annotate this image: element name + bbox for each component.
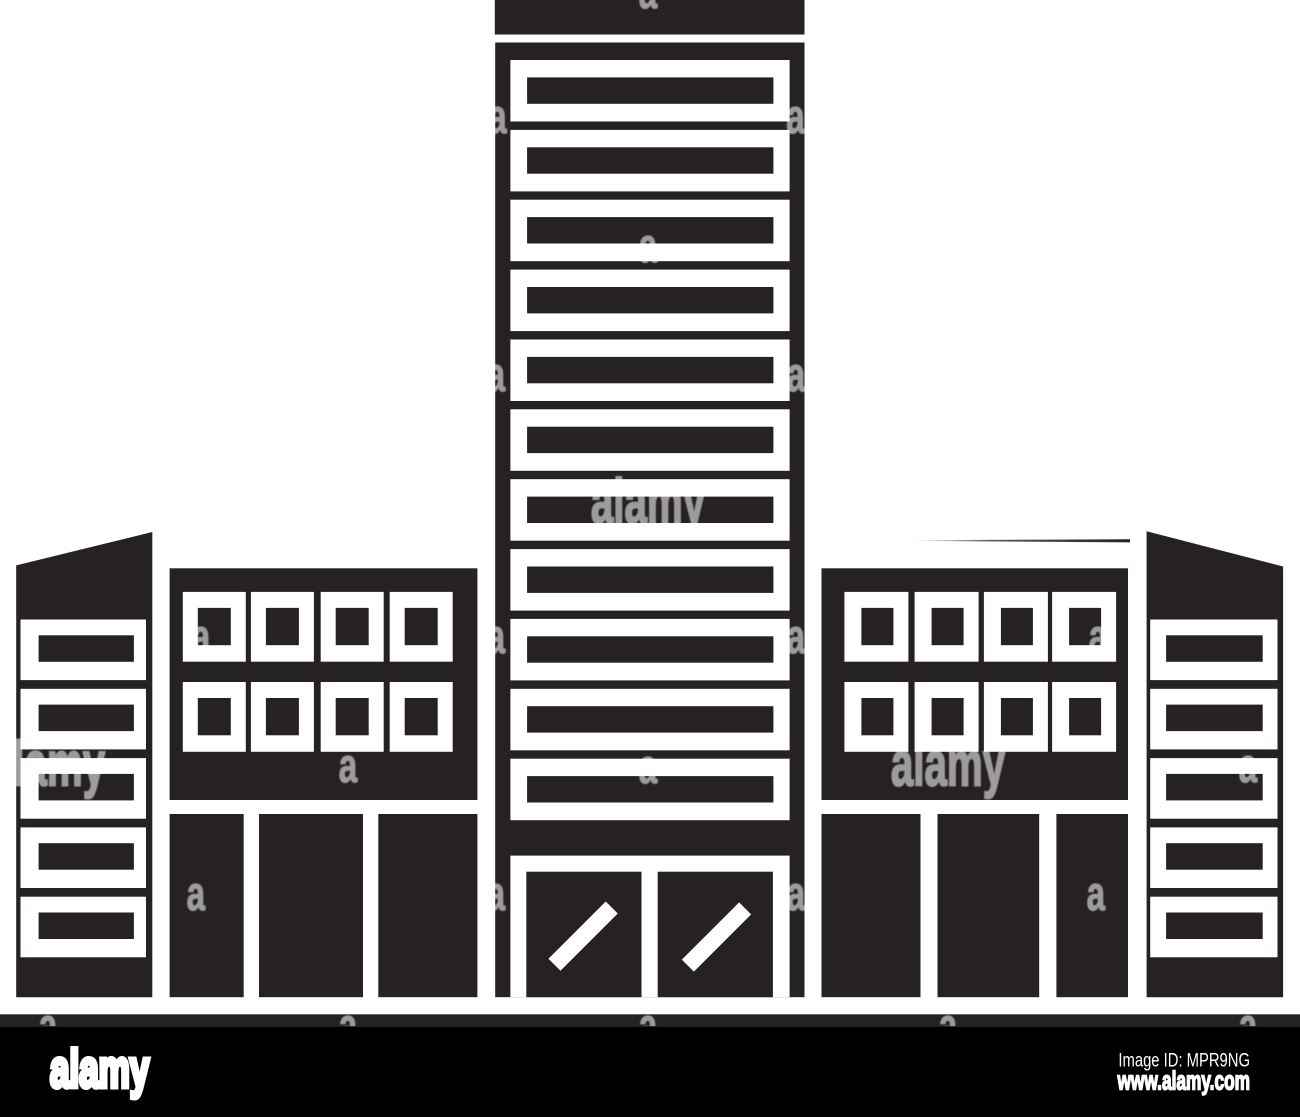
svg-text:a: a	[787, 867, 806, 921]
svg-text:a: a	[639, 0, 658, 18]
svg-text:a: a	[487, 867, 506, 921]
svg-text:a: a	[1089, 610, 1108, 664]
svg-text:a: a	[192, 610, 211, 664]
svg-text:a: a	[339, 739, 358, 793]
svg-text:a: a	[787, 610, 806, 664]
svg-text:a: a	[488, 90, 507, 144]
svg-text:a: a	[187, 867, 206, 921]
svg-text:a: a	[487, 348, 506, 402]
svg-text:a: a	[1087, 867, 1106, 921]
svg-text:alamy: alamy	[591, 467, 706, 537]
svg-text:alamy: alamy	[50, 1041, 149, 1099]
svg-text:a: a	[639, 219, 658, 273]
svg-text:a: a	[787, 348, 806, 402]
svg-text:alamy: alamy	[891, 729, 1006, 799]
svg-text:a: a	[1239, 739, 1258, 793]
svg-text:alamy: alamy	[0, 729, 105, 799]
svg-text:a: a	[487, 610, 506, 664]
svg-text:a: a	[786, 90, 805, 144]
svg-text:www.alamy.com: www.alamy.com	[1117, 1066, 1250, 1095]
svg-text:a: a	[639, 740, 658, 794]
